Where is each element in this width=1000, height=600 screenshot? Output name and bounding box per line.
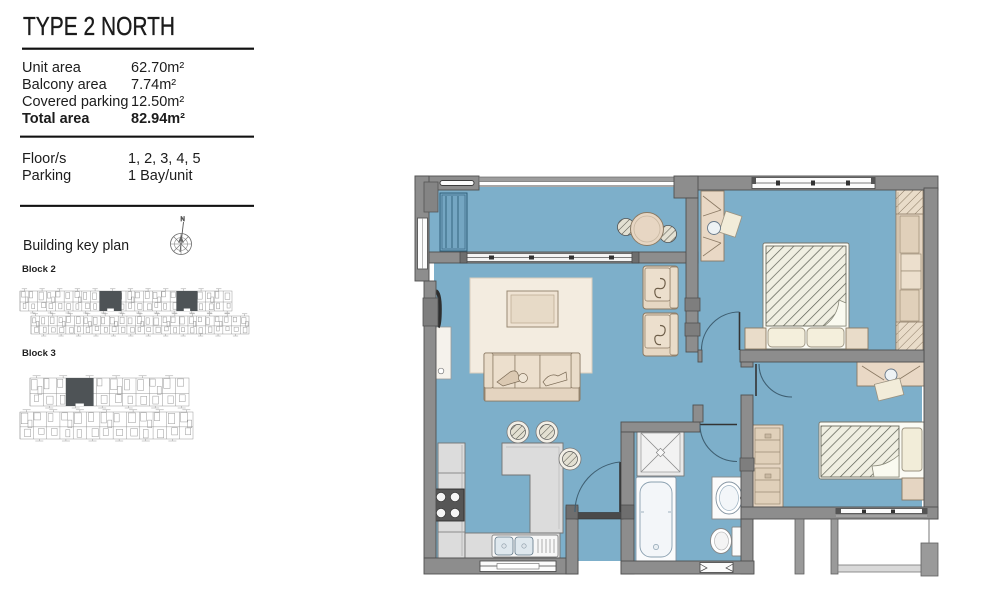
svg-text:Balcony area: Balcony area <box>22 77 108 93</box>
svg-text:82.94m²: 82.94m² <box>131 111 185 127</box>
svg-text:Floor/s: Floor/s <box>22 151 66 167</box>
svg-text:Building key plan: Building key plan <box>23 237 129 254</box>
svg-text:TYPE 2 NORTH: TYPE 2 NORTH <box>23 13 175 41</box>
svg-text:7.74m²: 7.74m² <box>131 77 176 93</box>
svg-text:Block 2: Block 2 <box>22 264 56 275</box>
svg-text:Parking: Parking <box>22 168 71 184</box>
svg-text:Covered parking: Covered parking <box>22 94 128 110</box>
svg-text:1 Bay/unit: 1 Bay/unit <box>128 168 193 184</box>
svg-text:1, 2, 3, 4, 5: 1, 2, 3, 4, 5 <box>128 151 201 167</box>
svg-text:Unit area: Unit area <box>22 60 82 76</box>
svg-text:12.50m²: 12.50m² <box>131 94 184 110</box>
svg-text:Total area: Total area <box>22 111 90 127</box>
svg-text:62.70m²: 62.70m² <box>131 60 184 76</box>
svg-text:N: N <box>181 217 185 223</box>
svg-text:Block 3: Block 3 <box>22 348 56 359</box>
